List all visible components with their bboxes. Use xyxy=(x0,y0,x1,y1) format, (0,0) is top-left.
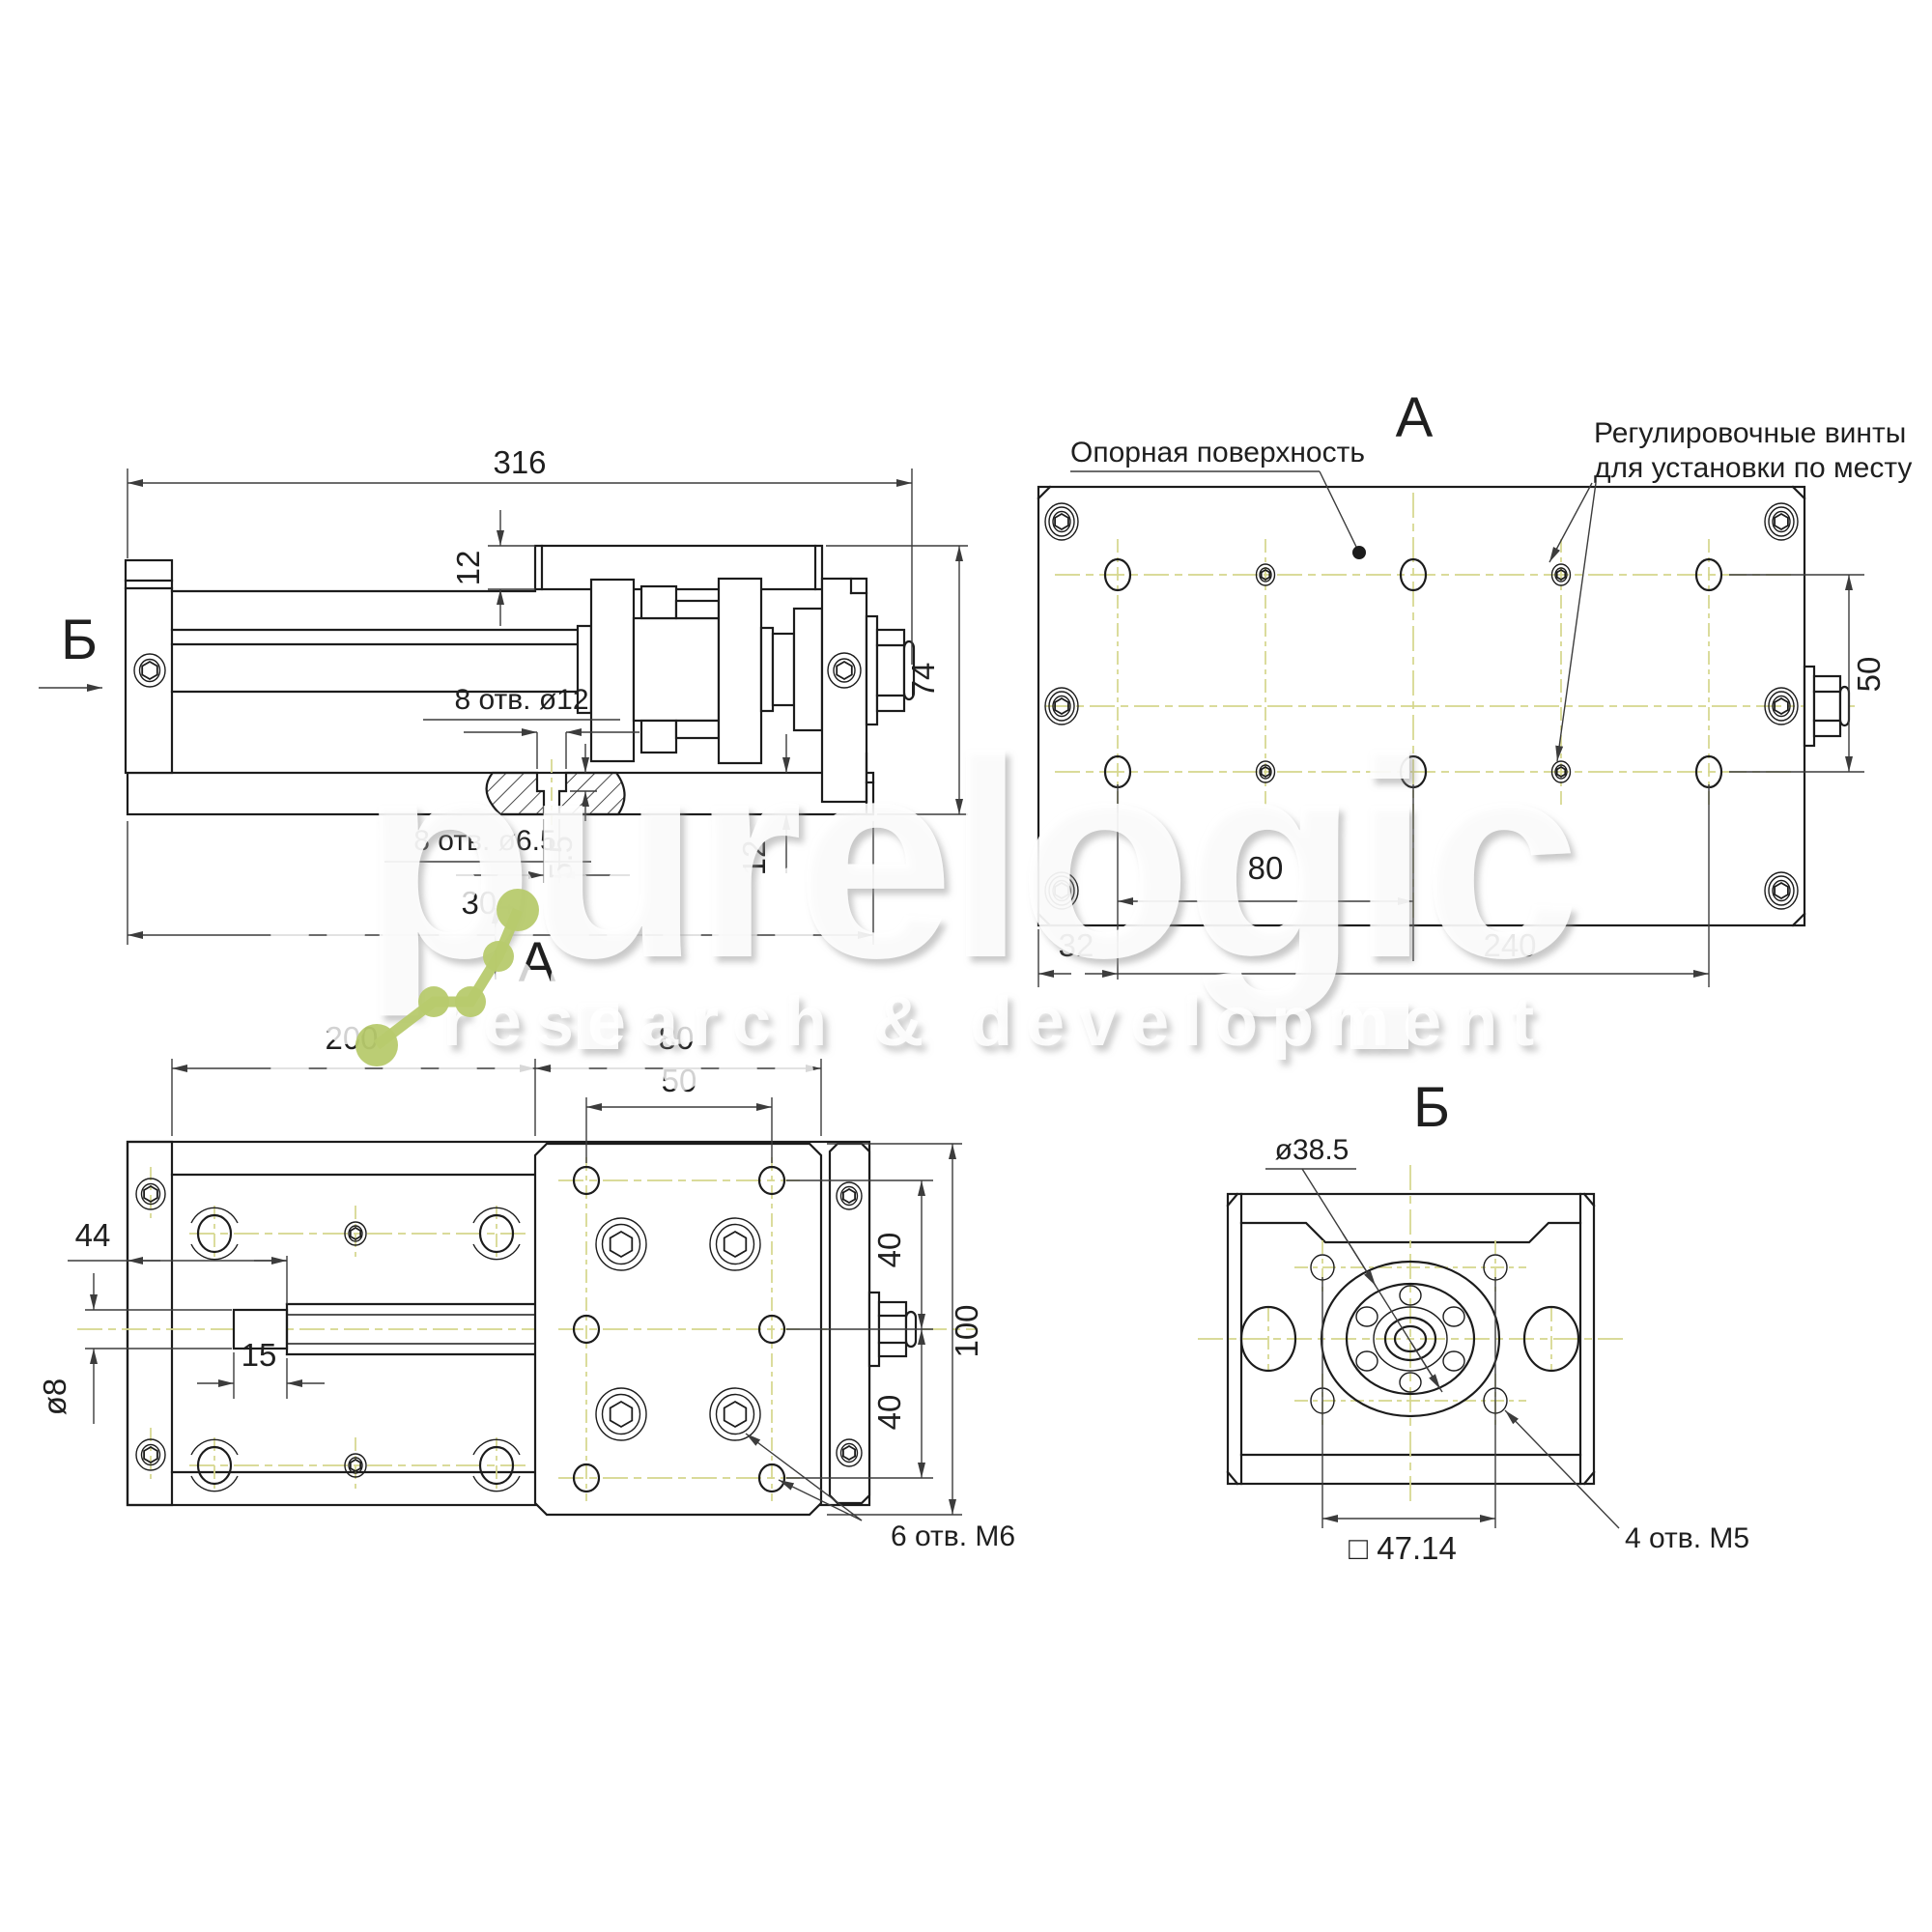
watermark-dot xyxy=(270,1052,309,1091)
plan-right-block xyxy=(830,1144,916,1503)
watermark-dot xyxy=(270,1006,309,1044)
view-arrow-b-label: Б xyxy=(61,609,98,671)
dim-40-bottom: 40 xyxy=(871,1395,907,1431)
watermark-dot xyxy=(270,913,309,952)
watermark-bracket-right xyxy=(1350,1003,1408,1049)
plan-carriage xyxy=(535,1144,821,1515)
dim-316: 316 xyxy=(493,444,546,480)
watermark: purelogic research & development xyxy=(270,698,1573,1091)
watermark-dot xyxy=(270,959,309,998)
label-adjust-screws-2: для установки по месту xyxy=(1594,452,1912,484)
watermark-dot xyxy=(327,1052,365,1091)
view-b-title: Б xyxy=(1413,1076,1450,1139)
dim-74: 74 xyxy=(905,663,941,698)
dim-40-top: 40 xyxy=(871,1233,907,1268)
dim-15: 15 xyxy=(241,1337,277,1373)
saddle-plate xyxy=(535,546,822,589)
view-a-shaft-nut xyxy=(1804,667,1849,746)
label-support-surface: Опорная поверхность xyxy=(1070,437,1365,469)
label-adjust-screws-1: Регулировочные винты xyxy=(1594,417,1906,449)
dim-d8: ø8 xyxy=(37,1378,72,1416)
dim-d38-5: ø38.5 xyxy=(1275,1134,1350,1166)
label-holes-m6: 6 отв. М6 xyxy=(891,1520,1015,1552)
dim-12-top: 12 xyxy=(450,551,486,586)
watermark-brand: purelogic xyxy=(359,698,1573,1019)
watermark-dot xyxy=(270,867,309,905)
view-a-title: А xyxy=(1396,386,1434,449)
drawing-page: 316 12 74 8 отв. ø12 8 отв. ø6.5 xyxy=(0,0,1932,1932)
dim-square-47-14: □ 47.14 xyxy=(1349,1530,1457,1566)
plan-left-screws xyxy=(136,1179,165,1470)
dim-44: 44 xyxy=(75,1217,111,1253)
label-holes-m5: 4 отв. М5 xyxy=(1625,1522,1749,1554)
dim-100: 100 xyxy=(949,1304,984,1357)
view-b: Б xyxy=(1198,1076,1749,1566)
view-b-dimensions: ø38.5 □ 47.14 4 отв. М5 xyxy=(1265,1134,1749,1566)
technical-drawing-canvas: 316 12 74 8 отв. ø12 8 отв. ø6.5 xyxy=(0,0,1932,1932)
dim-50-a: 50 xyxy=(1851,657,1887,693)
plan-view: 200 80 50 44 15 ø8 40 xyxy=(37,1020,1015,1552)
